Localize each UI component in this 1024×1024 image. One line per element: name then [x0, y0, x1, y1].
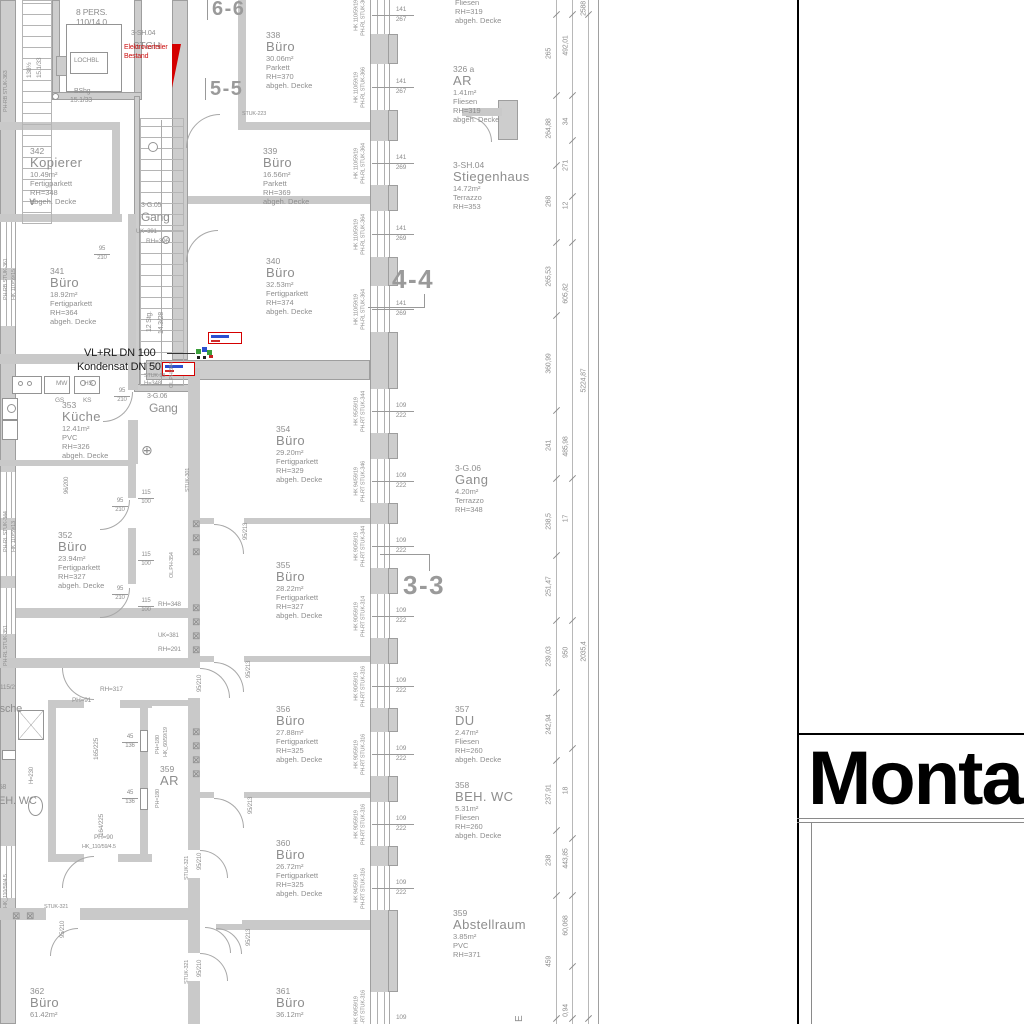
wall-partition	[244, 656, 370, 662]
circle-symbol	[52, 93, 59, 100]
annotation-label: 3-G.05	[141, 202, 161, 210]
annotation-label: 15.1/33	[36, 58, 43, 78]
dimension-value: 950	[563, 618, 570, 688]
wall-partition	[0, 460, 136, 466]
room-name: Gang	[455, 473, 488, 487]
room-detail: abgeh. Decke	[266, 307, 312, 316]
window-tag: HK 90/59/19PH-RT STUK-316	[354, 793, 367, 857]
room-detail: 3.85m²	[453, 932, 526, 941]
room-label-340: 340Büro32.53m²FertigparkettRH=374abgeh. …	[266, 256, 312, 316]
room-detail: abgeh. Decke	[263, 197, 309, 206]
room-name: Büro	[58, 540, 104, 554]
wall	[388, 110, 398, 141]
annotation-label: STUK-28	[144, 373, 165, 379]
window-dim-top: 109	[388, 879, 414, 886]
annotation-label: ⊕	[141, 442, 153, 458]
dimension-value: 251,47	[546, 552, 553, 622]
shaft-cross-icon: ⊠	[192, 520, 200, 530]
line	[797, 733, 1024, 735]
wall	[388, 776, 398, 802]
window-tag: HK 110/59/19PH-RL STUK-364	[354, 132, 367, 196]
annotation-label: 15.1/33	[70, 97, 92, 105]
circle-symbol	[18, 381, 23, 386]
line	[572, 0, 573, 1024]
annotation-label: 165/225	[93, 738, 100, 760]
line	[797, 818, 1024, 819]
annotation-label: HS	[84, 380, 93, 387]
window-dim-top: 109	[388, 607, 414, 614]
line	[797, 0, 799, 1024]
wall-partition	[188, 930, 200, 953]
room-name: Küche	[62, 410, 108, 424]
annotation-label: STUK-321	[184, 856, 190, 880]
room-detail: Terrazzo	[455, 496, 488, 505]
room-detail: 1.41m²	[453, 88, 499, 97]
line	[424, 294, 425, 308]
room-detail: RH=353	[453, 202, 530, 211]
room-detail: PVC	[453, 941, 526, 950]
window	[370, 0, 390, 34]
room-detail: Fliesen	[453, 97, 499, 106]
annotation-label: STUK-321	[44, 904, 68, 910]
wall-partition	[188, 981, 200, 1024]
room-detail: abgeh. Decke	[453, 115, 499, 124]
annotation-label: 14.3/28	[158, 312, 166, 334]
line	[211, 335, 229, 338]
wall-partition	[118, 854, 152, 862]
wall	[52, 92, 142, 100]
annotation-label: 109	[396, 1014, 406, 1021]
room-detail: RH=326	[62, 442, 108, 451]
annotation-label: PH-RB STUK-361	[3, 258, 9, 300]
wall-partition	[128, 214, 136, 360]
dim-fraction-top: 95	[94, 246, 110, 252]
wall-partition	[200, 656, 214, 662]
window-tag: HK 110/59/19PH-RL STUK-366	[354, 56, 367, 120]
room-name: Büro	[30, 996, 59, 1010]
dimension-value: 2035,4	[581, 617, 588, 687]
wall-partition	[128, 420, 138, 464]
annotation-label: 358	[0, 784, 6, 792]
dim-fraction-bottom: 210	[112, 507, 128, 513]
wall	[388, 638, 398, 664]
room-label-358: 358BEH. WC5.31m²FliesenRH=260abgeh. Deck…	[455, 780, 513, 840]
wall	[388, 910, 398, 992]
annotation-label: OL.PH-344	[169, 362, 175, 388]
room-detail: 32.53m²	[266, 280, 312, 289]
dim-fraction-bottom: 210	[112, 595, 128, 601]
room-detail: 61.42m²	[30, 1010, 59, 1019]
annotation-label: H=230	[29, 767, 36, 784]
annotation-label: Bestand	[124, 53, 148, 61]
wall	[388, 433, 398, 459]
room-detail: Fertigparkett	[50, 299, 96, 308]
room-detail: Fliesen	[455, 737, 501, 746]
window-tag: HK 110/59/19PH-RL STUK-364	[354, 203, 367, 267]
annotation-label: 138½	[26, 63, 33, 78]
room-detail: RH=329	[276, 466, 322, 475]
wall	[52, 0, 60, 100]
annotation-label: 95/210	[60, 921, 67, 938]
window-dim-bottom: 222	[388, 482, 414, 489]
room-label-338: 338Büro30.06m²ParkettRH=370abgeh. Decke	[266, 30, 312, 90]
window-dim-bottom: 269	[388, 164, 414, 171]
room-detail: 28.22m²	[276, 584, 322, 593]
room-detail: Fertigparkett	[266, 289, 312, 298]
room-name: Büro	[276, 996, 305, 1010]
window-dim-bottom: 222	[388, 889, 414, 896]
dimension-value: 238	[546, 826, 553, 896]
wall-partition	[112, 122, 120, 214]
line	[205, 78, 206, 100]
annotation-label: PH=180	[155, 789, 161, 808]
room-detail: 29.20m²	[276, 448, 322, 457]
room-name: Büro	[266, 266, 312, 280]
annotation-label: 115/2	[0, 684, 15, 691]
electrical-flag-icon	[172, 44, 181, 88]
room-detail: RH=325	[276, 880, 322, 889]
annotation-label: LOCHBL	[74, 57, 99, 64]
annotation-label: PH-RL STUK-351	[3, 625, 9, 666]
room-detail: RH=369	[263, 188, 309, 197]
line	[211, 340, 220, 342]
room-detail: 23.94m²	[58, 554, 104, 563]
dimension-value: 60,068	[563, 891, 570, 961]
dimension-value: 18	[563, 756, 570, 826]
shaft-cross-icon: ⊠	[192, 618, 200, 628]
room-name: Stiegenhaus	[453, 170, 530, 184]
line	[161, 120, 162, 384]
room-label-360: 360Büro26.72m²FertigparkettRH=325abgeh. …	[276, 838, 322, 898]
dimension-value: 238,5	[546, 487, 553, 557]
room-detail: Parkett	[263, 179, 309, 188]
wall-partition	[80, 908, 192, 920]
room-detail: Terrazzo	[453, 193, 530, 202]
dim-fraction-bottom: 100	[138, 561, 154, 567]
dimension-value: 5224,87	[581, 346, 588, 416]
window-tag: HK 90/59/19PH-RT STUK-316	[354, 723, 367, 787]
window-tag: HK 95/59/19PH-RT STUK-344	[354, 380, 367, 444]
door-swing-arc	[214, 798, 244, 828]
room-detail: 4.20m²	[455, 487, 488, 496]
shaft-cross-icon: ⊠	[192, 756, 200, 766]
room-detail: 5.31m²	[455, 804, 513, 813]
wall-partition	[244, 792, 370, 798]
dim-fraction-top: 115	[138, 598, 154, 604]
annotation-label: VL+RL DN 100	[84, 347, 156, 360]
room-label-362: 362Büro61.42m²	[30, 986, 59, 1019]
room-detail: abgeh. Decke	[455, 755, 501, 764]
room-detail: abgeh. Decke	[30, 197, 82, 206]
annotation-label: PH-RL STUK-344	[3, 511, 9, 552]
window-tag: HK 94/59/19PH-RT STUK-316	[354, 857, 367, 921]
window-tag: HK 90/59/19PH-RT STUK-344	[354, 515, 367, 579]
annotation-label: Gang	[149, 402, 178, 416]
window-dim-bottom: 222	[388, 687, 414, 694]
dimension-value: 492,01	[563, 11, 570, 81]
room-detail: RH=260	[455, 746, 501, 755]
annotation-label: STUK-301	[185, 468, 191, 492]
annotation-label: HK_110/59/4.5	[82, 844, 116, 850]
wall	[388, 34, 398, 64]
wall	[388, 708, 398, 732]
door-swing-arc	[62, 668, 94, 700]
door-swing-arc	[214, 524, 244, 554]
room-label-356: 356Büro27.88m²FertigparkettRH=325abgeh. …	[276, 704, 322, 764]
room-detail: abgeh. Decke	[266, 81, 312, 90]
line	[429, 554, 430, 571]
window-tag: HK 94/59/19PH-RT STUK-346	[354, 450, 367, 514]
dim-fraction-bottom: 210	[94, 255, 110, 261]
line	[797, 822, 1024, 823]
door-swing-arc	[200, 953, 228, 981]
room-detail: RH=370	[266, 72, 312, 81]
room-detail: 12.41m²	[62, 424, 108, 433]
dim-fraction-bottom: 100	[138, 499, 154, 505]
room-detail: Fertigparkett	[276, 737, 322, 746]
room-detail: abgeh. Decke	[455, 16, 501, 25]
door-swing-arc	[186, 230, 218, 262]
line	[588, 0, 589, 1024]
circle-symbol	[148, 142, 158, 152]
shaft-cross-icon: ⊠	[192, 742, 200, 752]
annotation-label: Kondensat DN 50	[77, 361, 161, 374]
annotation-label: OL.PH-354	[169, 552, 175, 578]
revision-cloud-box	[208, 332, 242, 344]
room-label-partial: FliesenRH=319abgeh. Decke	[455, 0, 501, 25]
room-detail: abgeh. Decke	[62, 451, 108, 460]
annotation-label: RH=317	[100, 686, 123, 693]
room-detail: 16.56m²	[263, 170, 309, 179]
room-detail: RH=325	[276, 746, 322, 755]
shaft-cross-icon: ⊠	[12, 912, 20, 922]
window-dim-top: 141	[388, 300, 414, 307]
wall-partition	[0, 122, 120, 130]
line	[207, 0, 208, 20]
room-detail: PVC	[62, 433, 108, 442]
annotation-label: RH=348	[158, 601, 181, 608]
room-detail: Fliesen	[455, 0, 501, 7]
annotation-label: Elektroverteiler	[124, 44, 167, 52]
annotation-label: HK_110/59/4.5	[3, 874, 9, 908]
line	[380, 554, 429, 555]
window-dim-top: 109	[388, 677, 414, 684]
annotation-label: H=348	[144, 381, 161, 388]
room-detail: RH=319	[455, 7, 501, 16]
room-label-357: 357DU2.47m²FliesenRH=260abgeh. Decke	[455, 704, 501, 764]
annotation-label: 95/210	[197, 675, 204, 692]
section-marker-6-6: 6-6	[212, 0, 245, 21]
room-detail: RH=327	[58, 572, 104, 581]
line	[556, 0, 557, 1024]
window-dim-bottom: 267	[388, 16, 414, 23]
room-name: BEH. WC	[455, 790, 513, 804]
wall-partition	[244, 518, 370, 524]
room-label-359: 359AR	[160, 764, 179, 788]
annotation-label: MW	[56, 380, 67, 387]
dimension-value: 264,88	[546, 94, 553, 164]
room-name: Büro	[50, 276, 96, 290]
dim-fraction-top: 45	[122, 790, 138, 796]
fixture-box	[2, 750, 16, 760]
annotation-label: KS	[83, 397, 91, 404]
circle-symbol	[27, 381, 32, 386]
room-detail: abgeh. Decke	[276, 475, 322, 484]
window-dim-top: 141	[388, 154, 414, 161]
annotation-label: 95/213	[246, 929, 253, 946]
annotation-label: HK 110/59/15	[11, 269, 17, 300]
room-detail: Parkett	[266, 63, 312, 72]
room-detail: 14.72m²	[453, 184, 530, 193]
wall-partition	[48, 700, 56, 862]
room-detail: 10.49m²	[30, 170, 82, 179]
window-dim-bottom: 222	[388, 617, 414, 624]
shaft-cross-icon: ⊠	[192, 646, 200, 656]
annotation-label: STUK-223	[242, 111, 266, 117]
room-name: AR	[453, 74, 499, 88]
room-label-326 a: 326 aAR1.41m²FliesenRH=319abgeh. Decke	[453, 64, 499, 124]
room-detail: abgeh. Decke	[50, 317, 96, 326]
room-detail: RH=319	[453, 106, 499, 115]
room-name: Büro	[276, 714, 322, 728]
annotation-label: PH=180	[155, 735, 161, 754]
circle-symbol	[7, 404, 16, 413]
room-label-3-SH.04: 3-SH.04Stiegenhaus14.72m²TerrazzoRH=353	[453, 160, 530, 211]
room-detail: RH=364	[50, 308, 96, 317]
annotation-label: 12 Stg.	[146, 311, 154, 332]
room-detail: RH=348	[455, 505, 488, 514]
room-detail: RH=260	[455, 822, 513, 831]
room-name: Büro	[266, 40, 312, 54]
wall-partition	[140, 700, 148, 862]
room-detail: Fliesen	[455, 813, 513, 822]
shaft-cross-icon: ⊠	[192, 632, 200, 642]
wall	[498, 100, 518, 140]
annotation-label: RH=396	[146, 238, 169, 245]
room-detail: RH=374	[266, 298, 312, 307]
room-detail: abgeh. Decke	[455, 831, 513, 840]
window-dim-top: 109	[388, 745, 414, 752]
dimension-value: 2588	[581, 0, 588, 44]
window-dim-bottom: 267	[388, 88, 414, 95]
window-dim-bottom: 269	[388, 310, 414, 317]
room-label-353: 353Küche12.41m²PVCRH=326abgeh. Decke	[62, 400, 108, 460]
room-name: Kopierer	[30, 156, 82, 170]
wall-partition	[128, 460, 136, 498]
dimension-value: 241	[546, 411, 553, 481]
dim-fraction-top: 95	[114, 388, 130, 394]
window-dim-top: 109	[388, 402, 414, 409]
wall-partition	[148, 700, 188, 706]
room-detail: RH=371	[453, 950, 526, 959]
room-name: Büro	[276, 848, 322, 862]
door-swing-arc	[200, 850, 228, 878]
dimension-value: 485,98	[563, 412, 570, 482]
room-label-354: 354Büro29.20m²FertigparkettRH=329abgeh. …	[276, 424, 322, 484]
wall	[388, 503, 398, 524]
dimension-value: 265,53	[546, 242, 553, 312]
floor-plan-sheet: Monta ⊠⊠⊠⊠⊠⊠⊠⊠⊠⊠⊠⊠⊠338Büro30.06m²Parkett…	[0, 0, 1024, 1024]
line	[209, 355, 213, 358]
room-detail: 27.88m²	[276, 728, 322, 737]
dimension-value: 17	[563, 484, 570, 554]
door-swing-arc	[100, 500, 130, 530]
annotation-label: GS	[55, 397, 64, 404]
wall-partition	[0, 214, 122, 222]
line	[811, 822, 812, 1024]
room-name: Abstellraum	[453, 918, 526, 932]
annotation-label: UK=381	[158, 633, 179, 640]
section-marker-3-3: 3-3	[403, 570, 445, 601]
room-label-352: 352Büro23.94m²FertigparkettRH=327abgeh. …	[58, 530, 104, 590]
dimension-value: 239,03	[546, 622, 553, 692]
line	[197, 356, 200, 359]
annotation-label: 95/210	[197, 853, 204, 870]
annotation-label: UK=391	[136, 229, 157, 236]
window-dim-top: 109	[388, 537, 414, 544]
annotation-label: ∨	[28, 196, 36, 209]
shaft-cross-icon: ⊠	[192, 770, 200, 780]
room-detail: Fertigparkett	[276, 871, 322, 880]
annotation-label: 110/14.0	[76, 18, 107, 28]
room-label-361: 361Büro36.12m²	[276, 986, 305, 1019]
dimension-value: 242,94	[546, 690, 553, 760]
room-detail: Fertigparkett	[30, 179, 82, 188]
fixture-box	[2, 420, 18, 440]
dim-fraction-bottom: 136	[122, 743, 138, 749]
wall-partition	[200, 518, 214, 524]
window-dim-bottom: 222	[388, 412, 414, 419]
fixture-box	[140, 730, 148, 752]
room-label-341: 341Büro18.92m²FertigparkettRH=364abgeh. …	[50, 266, 96, 326]
room-name: Büro	[263, 156, 309, 170]
line	[203, 356, 206, 359]
annotation-label: STUK-321	[184, 960, 190, 984]
room-label-355: 355Büro28.22m²FertigparkettRH=327abgeh. …	[276, 560, 322, 620]
window-tag: HK 110/59/19PH-RL STUK-363	[354, 0, 367, 48]
annotation-label: 164/225	[98, 814, 105, 836]
annotation-label: 95/213	[248, 797, 255, 814]
window-tag: HK 90/59/19PH-RT STUK-316	[354, 979, 367, 1024]
wall-partition	[200, 792, 214, 798]
dim-fraction-top: 45	[122, 734, 138, 740]
line	[167, 353, 195, 354]
wall	[388, 185, 398, 211]
dimension-value: 237,91	[546, 760, 553, 830]
annotation-label: 96/200	[64, 477, 71, 494]
room-detail: abgeh. Decke	[276, 889, 322, 898]
wall-partition	[0, 658, 188, 668]
window-tag: HK 110/59/19PH-RL STUK-364	[354, 278, 367, 342]
shaft-cross-icon: ⊠	[192, 548, 200, 558]
wall	[388, 568, 398, 594]
title-block-text: Monta	[808, 739, 1022, 819]
annotation-label: BEH. WC	[0, 795, 37, 808]
dimension-value: 443,85	[563, 824, 570, 894]
room-name: Büro	[276, 570, 322, 584]
room-name: DU	[455, 714, 501, 728]
annotation-label: Dusche	[0, 703, 22, 716]
door-swing-arc	[186, 114, 220, 148]
dimension-value: 360,99	[546, 329, 553, 399]
dim-fraction-top: 95	[112, 498, 128, 504]
room-detail: 2.47m²	[455, 728, 501, 737]
dimension-value: 268	[546, 167, 553, 237]
dimension-value: 0,94	[563, 976, 570, 1024]
annotation-label: PH=91	[72, 697, 91, 704]
annotation-label: 3-G.06	[147, 393, 167, 401]
dim-fraction-bottom: 210	[114, 397, 130, 403]
